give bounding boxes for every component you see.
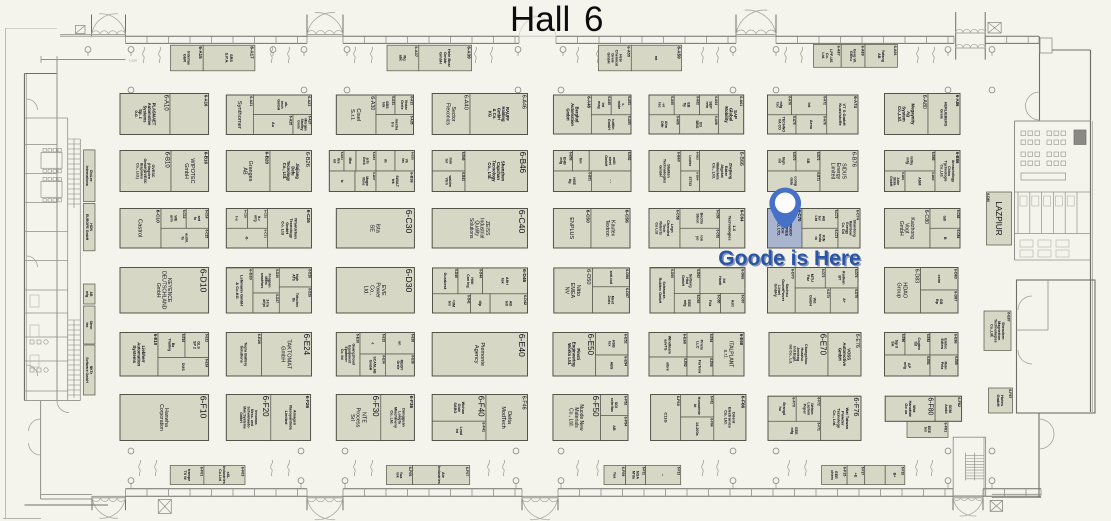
svg-text:ZhejiangBiderAigctatMaterialsC: ZhejiangBiderAigctatMaterialsCo., Ltd. xyxy=(711,162,733,180)
svg-text:6-E62: 6-E62 xyxy=(683,358,687,367)
svg-text:6-B26: 6-B26 xyxy=(304,152,310,167)
svg-text:6-C26: 6-C26 xyxy=(305,210,311,223)
svg-text:6-B52: 6-B52 xyxy=(627,152,631,161)
svg-text:6-A35: 6-A35 xyxy=(409,116,413,125)
svg-text:6-B10: 6-B10 xyxy=(163,152,169,169)
svg-text:6-C22: 6-C22 xyxy=(264,210,268,219)
svg-text:6-D28: 6-D28 xyxy=(307,269,311,278)
svg-text:6-D83: 6-D83 xyxy=(954,269,958,279)
svg-text:6-F52: 6-F52 xyxy=(624,396,628,406)
svg-text:6-F60: 6-F60 xyxy=(676,396,681,406)
svg-text:6-A40: 6-A40 xyxy=(463,95,469,110)
svg-text:6-F17: 6-F17 xyxy=(861,467,865,476)
svg-text:6-A21: 6-A21 xyxy=(249,96,253,106)
svg-text:6-A51: 6-A51 xyxy=(627,96,631,105)
svg-text:6-A31: 6-A31 xyxy=(391,96,395,105)
svg-text:6-A48: 6-A48 xyxy=(586,96,591,108)
svg-text:Durabest: Durabest xyxy=(443,273,447,290)
svg-text:6-B83: 6-B83 xyxy=(931,172,935,181)
svg-text:6-C30: 6-C30 xyxy=(404,210,414,234)
svg-text:6-E85: 6-E85 xyxy=(954,356,958,365)
svg-text:6-D41: 6-D41 xyxy=(467,295,471,304)
svg-text:6-E87: 6-E87 xyxy=(1007,312,1011,321)
svg-text:ShenzhenCapchanTecnologyCo., L: ShenzhenCapchanTecnologyCo., Ltd. xyxy=(487,160,506,182)
svg-text:SB: SB xyxy=(806,158,810,163)
svg-text:6-D42: 6-D42 xyxy=(523,295,527,305)
svg-text:6-F09: 6-F09 xyxy=(621,467,625,477)
svg-text:6-E64: 6-E64 xyxy=(709,334,713,343)
svg-text:ABS: ABS xyxy=(610,362,614,370)
svg-text:6-F87: 6-F87 xyxy=(1008,389,1012,398)
svg-text:mfgtec: mfgtec xyxy=(775,102,783,109)
svg-text:Int: Int xyxy=(807,103,812,108)
svg-text:LAZPIUR: LAZPIUR xyxy=(994,201,1003,235)
svg-text:on: on xyxy=(398,341,402,345)
svg-text:6-C72: 6-C72 xyxy=(834,210,838,219)
svg-text:1-124: 1-124 xyxy=(129,59,137,63)
svg-text:I-noise: I-noise xyxy=(688,155,692,166)
svg-text:6-A66: 6-A66 xyxy=(676,116,680,125)
svg-text:6-B37: 6-B37 xyxy=(372,172,376,181)
svg-text:cstm: cstm xyxy=(937,274,941,283)
svg-text:6-E66: 6-E66 xyxy=(709,358,713,367)
svg-text:6-F72: 6-F72 xyxy=(817,397,821,406)
svg-text:EEEmfg: EEEmfg xyxy=(790,427,798,435)
svg-text:6-F13: 6-F13 xyxy=(677,467,681,476)
svg-text:6-F20: 6-F20 xyxy=(261,396,270,417)
svg-text:6-E24: 6-E24 xyxy=(302,334,311,356)
svg-text:t-u: t-u xyxy=(235,216,239,220)
svg-text:Castrol: Castrol xyxy=(136,219,142,237)
svg-text:anti-tod: anti-tod xyxy=(609,271,613,285)
svg-text:A+: A+ xyxy=(842,298,846,303)
svg-text:6-C60: 6-C60 xyxy=(715,210,719,219)
svg-text:6-A60: 6-A60 xyxy=(670,96,674,105)
svg-text:6-B62: 6-B62 xyxy=(696,152,700,161)
svg-text:6-D29: 6-D29 xyxy=(307,288,311,297)
svg-text:6-F41: 6-F41 xyxy=(482,422,486,432)
svg-text:SEPreln: SEPreln xyxy=(705,101,713,109)
svg-text:6-E38: 6-E38 xyxy=(410,355,414,364)
svg-text:6-B86: 6-B86 xyxy=(955,152,960,164)
svg-text:6-D27: 6-D27 xyxy=(275,294,279,303)
svg-text:GLSSP 2: GLSSP 2 xyxy=(193,341,201,349)
svg-text:6-A55: 6-A55 xyxy=(627,46,632,57)
svg-text:6-F64: 6-F64 xyxy=(710,418,714,427)
svg-text:hm: hm xyxy=(579,158,583,164)
svg-text:6-C40: 6-C40 xyxy=(517,210,527,234)
svg-text:Aena: Aena xyxy=(809,120,813,130)
svg-text:6-F01: 6-F01 xyxy=(199,467,203,477)
svg-text:6-F03: 6-F03 xyxy=(241,467,245,477)
svg-text:VistarGrele: VistarGrele xyxy=(400,100,408,111)
svg-text:tati: tati xyxy=(943,216,947,222)
svg-text:6-F70: 6-F70 xyxy=(792,397,796,407)
svg-text:ASM: ASM xyxy=(918,177,922,185)
svg-text:14-200a: 14-200a xyxy=(695,422,699,436)
svg-text:6-A10: 6-A10 xyxy=(162,95,168,112)
svg-text:6-F54: 6-F54 xyxy=(624,417,628,428)
svg-text:6-A72: 6-A72 xyxy=(823,96,827,105)
svg-text:RelnPela: RelnPela xyxy=(940,362,948,371)
svg-text:6-C86: 6-C86 xyxy=(986,193,990,202)
svg-text:6-C12: 6-C12 xyxy=(182,210,186,219)
svg-text:highATS: highATS xyxy=(291,274,299,282)
svg-text:6-B40: 6-B40 xyxy=(461,152,465,161)
svg-text:6-F26: 6-F26 xyxy=(304,396,310,409)
svg-text:6-A70: 6-A70 xyxy=(788,96,792,105)
svg-text:6-A80: 6-A80 xyxy=(921,95,927,109)
svg-text:PricisLLC: PricisLLC xyxy=(696,340,704,350)
svg-text:6-D50: 6-D50 xyxy=(585,269,591,285)
svg-text:6-F71: 6-F71 xyxy=(817,423,821,432)
svg-text:6-A17: 6-A17 xyxy=(250,46,255,59)
svg-text:6-D56: 6-D56 xyxy=(625,269,629,279)
svg-text:6-C84: 6-C84 xyxy=(956,230,960,239)
svg-text:6-E20: 6-E20 xyxy=(257,334,262,344)
svg-text:6-F19: 6-F19 xyxy=(901,467,905,476)
svg-text:6-B76: 6-B76 xyxy=(851,152,857,167)
svg-text:SIDUSEnergyLimited: SIDUSEnergyLimited xyxy=(830,163,847,180)
svg-text:6-F40: 6-F40 xyxy=(476,396,485,417)
svg-text:6-C56: 6-C56 xyxy=(624,210,630,223)
svg-text:6-E30: 6-E30 xyxy=(356,334,360,343)
svg-text:6-B81: 6-B81 xyxy=(901,172,905,181)
svg-text:6-C21: 6-C21 xyxy=(264,230,268,239)
svg-text:VT S GmbHKunststoffe: VT S GmbHKunststoffe xyxy=(838,103,847,126)
svg-text:EHBmfg: EHBmfg xyxy=(559,157,567,165)
svg-text:6-D73: 6-D73 xyxy=(826,289,830,298)
svg-text:APmfg: APmfg xyxy=(903,362,911,369)
svg-text:6-A53: 6-A53 xyxy=(627,116,631,125)
svg-text:HDAOGroup: HDAOGroup xyxy=(896,282,908,299)
svg-text:CiselS.r.l.: CiselS.r.l. xyxy=(349,108,361,121)
svg-text:6-D63: 6-D63 xyxy=(696,295,700,304)
svg-text:6-C14: 6-C14 xyxy=(205,210,209,219)
svg-text:EmtecEdlew: EmtecEdlew xyxy=(940,338,948,349)
svg-text:6-B51: 6-B51 xyxy=(587,172,591,181)
svg-text:artsGmb: artsGmb xyxy=(362,157,370,165)
svg-text:BecttoStecn: BecttoStecn xyxy=(696,213,704,225)
svg-text:Yua: Yua xyxy=(613,472,617,480)
svg-text:6-F36: 6-F36 xyxy=(408,396,414,409)
svg-text:6-E52: 6-E52 xyxy=(624,334,628,344)
svg-text:6-C62: 6-C62 xyxy=(715,230,719,239)
svg-text:6-F76: 6-F76 xyxy=(852,397,861,416)
svg-text:6-B41: 6-B41 xyxy=(461,172,465,181)
svg-text:6-B46: 6-B46 xyxy=(518,152,527,174)
svg-text:Asti: Asti xyxy=(730,300,734,307)
svg-text:6-E50: 6-E50 xyxy=(586,334,595,356)
svg-text:6-F05: 6-F05 xyxy=(408,467,412,477)
svg-text:ds: ds xyxy=(383,159,387,163)
svg-text:MeetJoris: MeetJoris xyxy=(607,295,615,304)
svg-text:6-D20: 6-D20 xyxy=(248,269,253,280)
svg-text:6-D65: 6-D65 xyxy=(717,295,721,304)
svg-text:6-D26: 6-D26 xyxy=(275,269,279,278)
svg-text:6-C64: 6-C64 xyxy=(740,210,745,222)
svg-text:6-C82: 6-C82 xyxy=(956,210,960,219)
svg-text:Fdz: Fdz xyxy=(708,300,712,307)
svg-text:6: 6 xyxy=(584,0,603,39)
svg-text:6-D57: 6-D57 xyxy=(625,288,629,298)
svg-text:6-C20: 6-C20 xyxy=(244,210,248,219)
svg-text:ABtell: ABtell xyxy=(505,301,513,307)
svg-text:6-D87: 6-D87 xyxy=(954,291,958,301)
svg-text:AB: AB xyxy=(612,425,616,431)
svg-text:B+: B+ xyxy=(893,473,897,478)
svg-text:6-F46: 6-F46 xyxy=(521,396,527,410)
svg-text:Forfrew: Forfrew xyxy=(698,360,702,374)
svg-text:Affritek: Affritek xyxy=(501,277,510,285)
svg-text:GBBp: GBBp xyxy=(935,299,943,305)
svg-text:6-E60: 6-E60 xyxy=(682,334,687,344)
svg-text:tllp: tllp xyxy=(478,301,482,307)
svg-text:3-traaffpt: 3-traaffpt xyxy=(262,299,270,307)
svg-text:6-F81: 6-F81 xyxy=(944,423,948,433)
svg-text:+E: +E xyxy=(854,473,858,478)
svg-text:MagmVbns: MagmVbns xyxy=(361,176,369,186)
svg-text:6-A87: 6-A87 xyxy=(837,46,841,56)
svg-text:6-D44: 6-D44 xyxy=(479,269,483,278)
svg-text:6-E81: 6-E81 xyxy=(926,356,930,365)
svg-text:KautexTextron: KautexTextron xyxy=(604,220,616,237)
svg-text:6-A61: 6-A61 xyxy=(739,96,743,106)
svg-text:6-B66: 6-B66 xyxy=(738,152,744,166)
svg-text:6-B80: 6-B80 xyxy=(931,152,935,161)
svg-text:6-E34: 6-E34 xyxy=(381,355,385,364)
svg-text:6-C10: 6-C10 xyxy=(155,210,161,223)
svg-text:-vrtec: -vrtec xyxy=(657,102,665,108)
svg-text:6-D62: 6-D62 xyxy=(696,269,700,278)
svg-text:=3Mtex: =3Mtex xyxy=(447,300,455,307)
svg-text:6-E70: 6-E70 xyxy=(818,334,827,356)
svg-text:6-D60: 6-D60 xyxy=(670,269,674,278)
svg-text:6-A76: 6-A76 xyxy=(792,116,796,125)
svg-text:6-F15: 6-F15 xyxy=(843,467,847,477)
svg-text:6-B71: 6-B71 xyxy=(816,172,820,181)
svg-text:6-E16: 6-E16 xyxy=(181,334,185,343)
svg-text:MorganStanleyGrele: MorganStanleyGrele xyxy=(296,118,307,130)
svg-text:tz: tz xyxy=(340,180,344,183)
svg-text:MTUFdz: MTUFdz xyxy=(806,274,814,282)
svg-text:NGAM'da: NGAM'da xyxy=(631,471,639,480)
svg-text:it-rmfg: it-rmfg xyxy=(253,215,261,221)
svg-text:ENPLUS: ENPLUS xyxy=(568,217,574,239)
svg-text:6-A68: 6-A68 xyxy=(714,116,718,125)
svg-text:6-C15: 6-C15 xyxy=(205,230,209,239)
svg-text:6-E14: 6-E14 xyxy=(205,359,209,368)
svg-text:6-E82: 6-E82 xyxy=(926,334,930,343)
svg-text:6-D67: 6-D67 xyxy=(741,295,745,304)
svg-text:6-F11: 6-F11 xyxy=(642,467,646,475)
svg-text:6-C58: 6-C58 xyxy=(676,210,680,220)
svg-text:6-A62: 6-A62 xyxy=(696,96,700,105)
svg-text:6-E40: 6-E40 xyxy=(517,334,527,357)
svg-text:6-E54: 6-E54 xyxy=(624,356,628,367)
svg-text:6-B35: 6-B35 xyxy=(411,152,415,161)
svg-text:EEEmfg: EEEmfg xyxy=(683,300,691,308)
svg-text:6-F80: 6-F80 xyxy=(927,397,934,415)
svg-text:6-A78: 6-A78 xyxy=(823,116,827,125)
svg-text:6-A27: 6-A27 xyxy=(307,116,311,125)
svg-text:AhnDffr: AhnDffr xyxy=(660,121,668,129)
svg-text:6-B64: 6-B64 xyxy=(696,172,700,181)
svg-text:6-A37: 6-A37 xyxy=(414,46,419,57)
svg-text:Gerg W.GKeu: Gerg W.GKeu xyxy=(849,49,857,63)
svg-text:6-A64: 6-A64 xyxy=(714,96,718,105)
svg-text:ABmfg: ABmfg xyxy=(85,291,93,297)
svg-text:6-B16: 6-B16 xyxy=(203,152,208,165)
svg-text:Synthomer: Synthomer xyxy=(236,101,242,129)
svg-text:C11G: C11G xyxy=(663,412,668,422)
svg-text:6-D75: 6-D75 xyxy=(854,289,858,298)
svg-text:6-A33: 6-A33 xyxy=(409,96,413,105)
svg-text:sibre: sibre xyxy=(666,362,670,371)
svg-text:6-B72: 6-B72 xyxy=(816,152,820,161)
svg-text:6-E12: 6-E12 xyxy=(205,334,209,343)
svg-text:Au: Au xyxy=(271,122,276,128)
svg-text:6-D46: 6-D46 xyxy=(521,269,527,282)
svg-text:6-E68: 6-E68 xyxy=(739,334,744,346)
svg-text:6-C73: 6-C73 xyxy=(834,230,838,239)
svg-text:6-A16: 6-A16 xyxy=(204,95,209,107)
svg-text:6-A25: 6-A25 xyxy=(289,116,293,126)
svg-text:6-B60: 6-B60 xyxy=(676,152,680,162)
svg-text:6-C74: 6-C74 xyxy=(856,210,860,221)
svg-text:6-B50: 6-B50 xyxy=(569,152,573,161)
svg-text:6-B31: 6-B31 xyxy=(340,152,344,161)
svg-text:6-B20: 6-B20 xyxy=(265,152,270,165)
svg-text:tBm: tBm xyxy=(348,158,352,165)
svg-text:6-A30: 6-A30 xyxy=(369,96,375,110)
svg-text:6-A46: 6-A46 xyxy=(521,95,527,109)
svg-text:6-D40: 6-D40 xyxy=(454,269,458,278)
svg-text:6-F50: 6-F50 xyxy=(591,396,600,417)
svg-text:PiemonteAgency: PiemonteAgency xyxy=(473,342,485,366)
svg-text:HotesGmbH: HotesGmbH xyxy=(996,395,1005,407)
svg-text:6-A39: 6-A39 xyxy=(466,46,471,59)
svg-text:DUS: DUS xyxy=(181,363,185,371)
svg-text:6-F10: 6-F10 xyxy=(198,396,208,419)
svg-text:37733: 37733 xyxy=(688,176,692,186)
svg-text:6-F82: 6-F82 xyxy=(957,397,961,407)
svg-text:6-F66: 6-F66 xyxy=(739,396,745,409)
svg-text:mt: mt xyxy=(654,56,658,61)
svg-text:6-C50: 6-C50 xyxy=(585,210,591,223)
svg-text:6-E76: 6-E76 xyxy=(854,334,860,348)
svg-text:6-D30: 6-D30 xyxy=(404,269,414,293)
svg-text:tuttlinGmbH: tuttlinGmbH xyxy=(607,119,615,130)
svg-text:6-B70: 6-B70 xyxy=(792,152,796,161)
svg-text:SGMAndd: SGMAndd xyxy=(944,404,952,414)
svg-text:6-E80: 6-E80 xyxy=(901,334,905,343)
svg-text:TECHNOVA CO: TECHNOVA CO xyxy=(778,117,786,133)
svg-text:6-E86: 6-E86 xyxy=(954,334,958,344)
svg-text:6-C80: 6-C80 xyxy=(923,210,929,224)
svg-text:Vbtec: Vbtec xyxy=(401,158,409,163)
svg-text:6-A89: 6-A89 xyxy=(861,46,865,56)
svg-text:Hall: Hall xyxy=(510,0,570,39)
svg-text:6-A15: 6-A15 xyxy=(198,46,203,59)
svg-text:6-A74: 6-A74 xyxy=(853,96,858,108)
svg-text:trampeTX W: trampeTX W xyxy=(183,469,191,481)
svg-text:REIDYGrele: REIDYGrele xyxy=(396,360,404,371)
svg-text:6-B33: 6-B33 xyxy=(372,152,376,161)
svg-text:6-E10: 6-E10 xyxy=(153,334,158,346)
svg-text:Goode is Here: Goode is Here xyxy=(718,247,860,270)
svg-text:B: B xyxy=(943,237,947,240)
svg-text:6-D10: 6-D10 xyxy=(198,269,208,293)
svg-text:6-F07: 6-F07 xyxy=(465,467,469,477)
svg-text:JiujiangDefuTecnologyCo., Ltd.: JiujiangDefuTecnologyCo., Ltd. xyxy=(282,161,300,182)
svg-text:6-E32: 6-E32 xyxy=(381,334,385,343)
svg-text:SRSS.P.A.: SRSS.P.A. xyxy=(225,53,234,64)
svg-text:6-A49: 6-A49 xyxy=(607,96,611,105)
svg-text:6-E36: 6-E36 xyxy=(410,334,414,343)
svg-text:6-A59: 6-A59 xyxy=(676,46,681,59)
svg-text:6-A23: 6-A23 xyxy=(307,96,311,106)
svg-text:6-F30: 6-F30 xyxy=(371,396,380,417)
svg-text:6-A91: 6-A91 xyxy=(893,46,897,56)
svg-text:6-A86: 6-A86 xyxy=(955,95,960,107)
svg-text:6-D83: 6-D83 xyxy=(914,269,920,283)
svg-text:6-F62: 6-F62 xyxy=(710,396,714,405)
